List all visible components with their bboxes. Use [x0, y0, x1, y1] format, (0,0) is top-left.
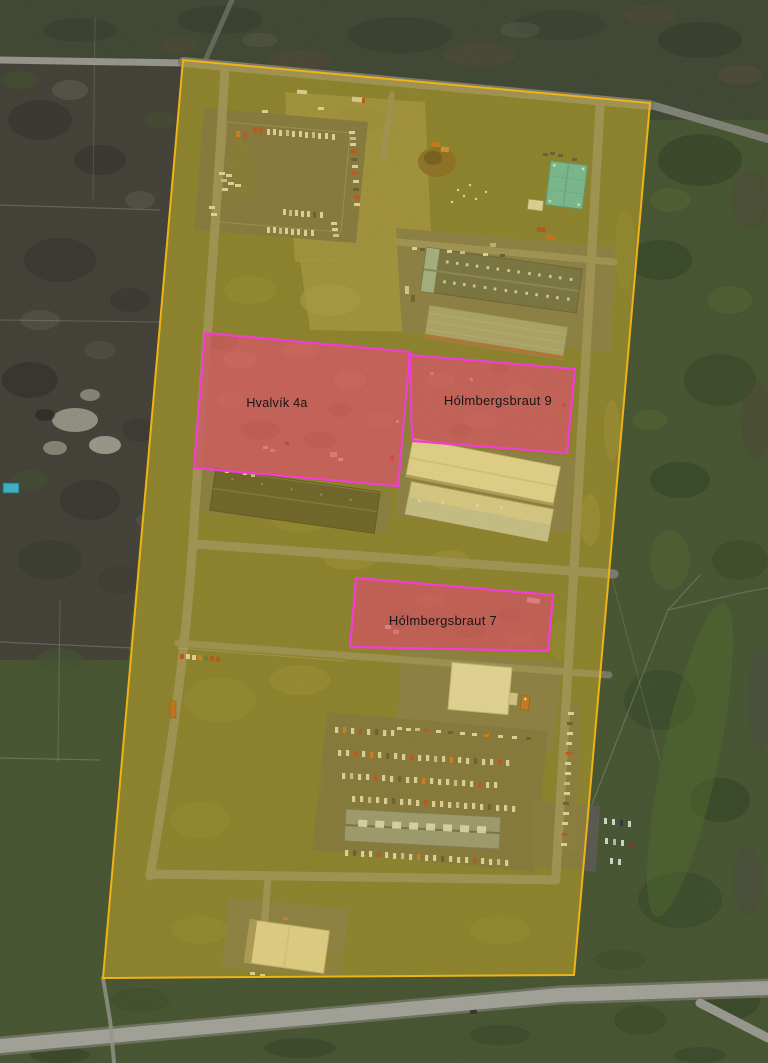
aerial-map-viewport: Hvalvík 4a Hólmbergsbraut 9 Hólmbergsbra…: [0, 0, 768, 1063]
zoning-overlays: Hvalvík 4a Hólmbergsbraut 9 Hólmbergsbra…: [103, 60, 650, 978]
parcel-label-holmbergsbraut-9: Hólmbergsbraut 9: [444, 393, 552, 408]
aerial-map: Hvalvík 4a Hólmbergsbraut 9 Hólmbergsbra…: [0, 0, 768, 1063]
parcel-label-hvalvik-4a: Hvalvík 4a: [246, 396, 307, 410]
parcel-label-holmbergsbraut-7: Hólmbergsbraut 7: [389, 613, 497, 628]
site-boundary-overlay[interactable]: [103, 60, 650, 978]
